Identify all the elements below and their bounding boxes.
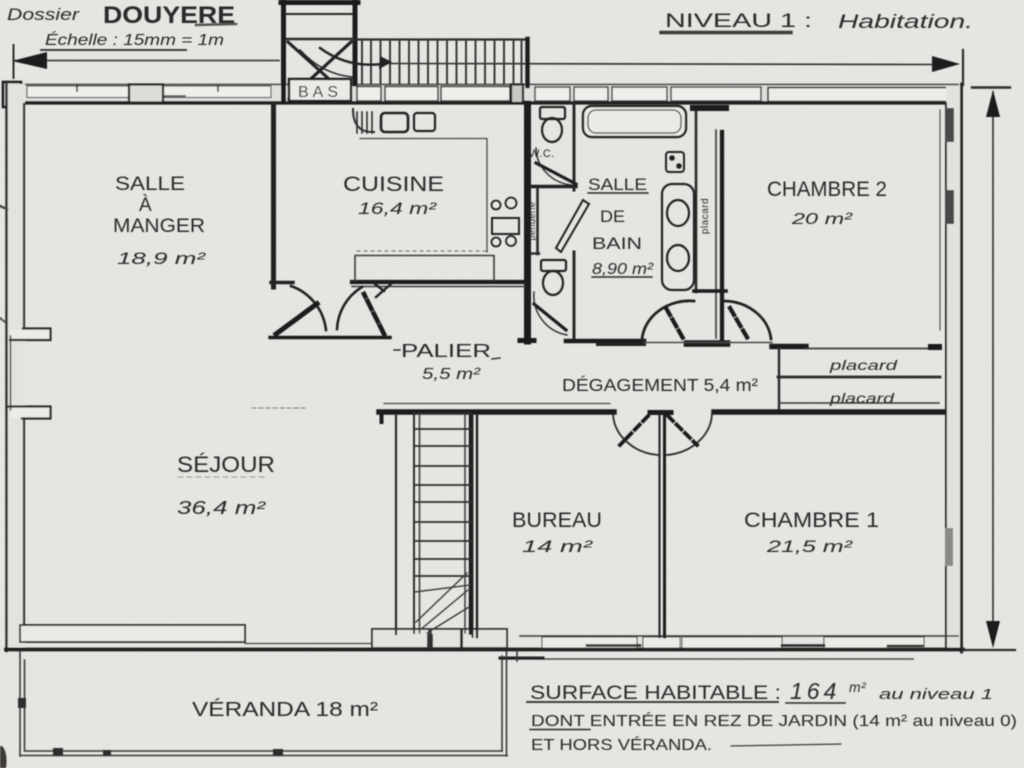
svg-text:14 m²: 14 m² [522, 537, 594, 556]
svg-text:Habitation.: Habitation. [838, 12, 973, 33]
svg-text:20 m²: 20 m² [791, 211, 853, 228]
svg-text:MANGER: MANGER [113, 216, 205, 237]
svg-text:CHAMBRE 1: CHAMBRE 1 [744, 509, 879, 532]
svg-text:BUREAU: BUREAU [512, 509, 602, 532]
svg-text:BAIN: BAIN [592, 234, 642, 253]
svg-text:À: À [139, 195, 152, 216]
svg-text:16,4 m²: 16,4 m² [358, 199, 438, 218]
svg-text:VÉRANDA 18 m²: VÉRANDA 18 m² [192, 698, 378, 721]
svg-text:DONT ENTRÉE EN REZ DE JARDIN (: DONT ENTRÉE EN REZ DE JARDIN (14 m² au n… [531, 711, 1017, 730]
svg-text:placard: placard [700, 198, 711, 234]
svg-text:ET HORS VÉRANDA.: ET HORS VÉRANDA. [531, 737, 712, 754]
svg-text:SALLE: SALLE [115, 174, 185, 195]
svg-text:CUISINE: CUISINE [343, 173, 444, 196]
svg-text:placard: placard [829, 357, 899, 373]
svg-text:CHAMBRE 2: CHAMBRE 2 [767, 178, 887, 201]
svg-text:W.C.: W.C. [529, 148, 555, 160]
svg-text:SÉJOUR: SÉJOUR [177, 452, 275, 477]
svg-text:21,5 m²: 21,5 m² [765, 538, 852, 556]
svg-text:SURFACE HABITABLE :: SURFACE HABITABLE : [530, 683, 781, 704]
svg-text:m²: m² [849, 679, 867, 695]
svg-text:DE: DE [600, 207, 625, 226]
svg-text:SALLE: SALLE [588, 175, 647, 194]
svg-text:NIVEAU 1 :: NIVEAU 1 : [665, 11, 812, 32]
svg-text:DÉGAGEMENT 5,4 m²: DÉGAGEMENT 5,4 m² [562, 375, 758, 395]
svg-text:8,90 m²: 8,90 m² [592, 261, 654, 278]
svg-text:164: 164 [790, 678, 840, 704]
svg-text:36,4 m²: 36,4 m² [177, 498, 266, 518]
svg-text:PALIER: PALIER [401, 341, 491, 361]
svg-text:18,9 m²: 18,9 m² [117, 249, 207, 268]
svg-text:BAS: BAS [298, 84, 342, 101]
svg-text:au niveau 1: au niveau 1 [879, 686, 993, 703]
svg-text:Échelle : 15mm = 1m: Échelle : 15mm = 1m [45, 30, 224, 49]
svg-text:Dossier: Dossier [7, 5, 81, 24]
svg-text:5,5 m²: 5,5 m² [422, 366, 481, 383]
svg-text:penderie: penderie [527, 201, 537, 240]
